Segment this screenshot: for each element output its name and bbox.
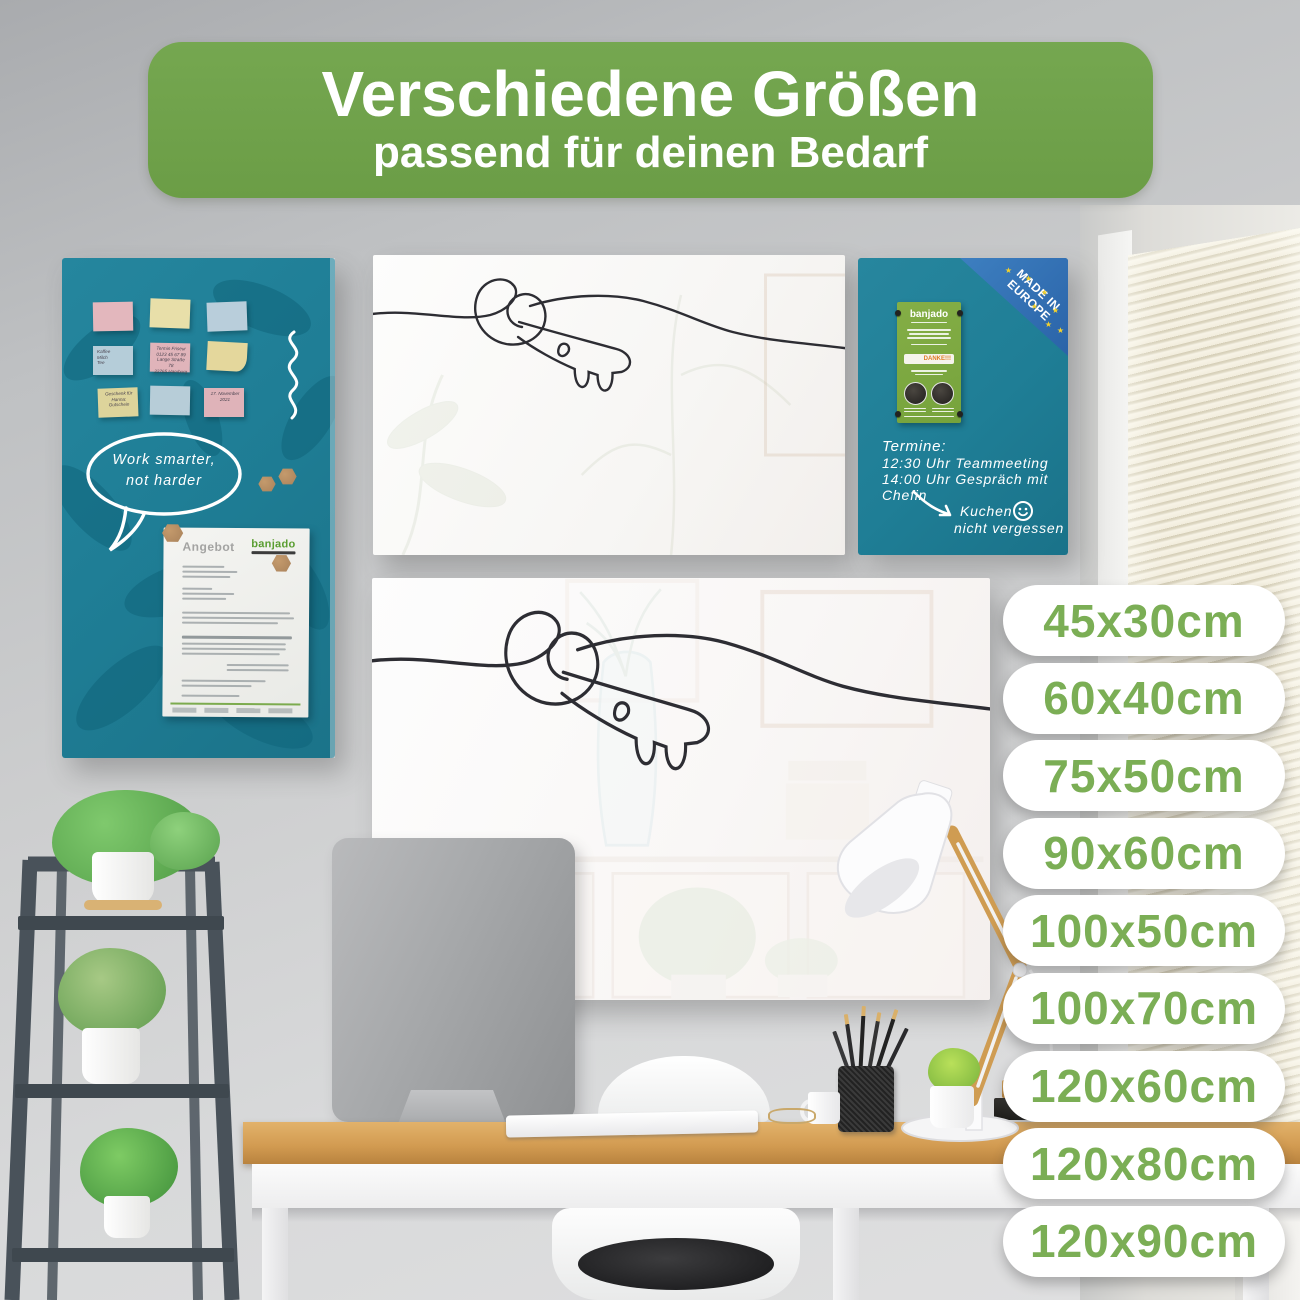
bubble-line2: not harder: [88, 471, 240, 493]
dog-photo: [931, 382, 954, 405]
size-pill: 90x60cm: [1003, 818, 1285, 889]
eu-star: ★: [1052, 306, 1059, 315]
size-pill: 120x80cm: [1003, 1128, 1285, 1199]
sticky-note: [150, 298, 191, 328]
chalk-arrow: [910, 488, 958, 522]
imac-back: [332, 838, 575, 1122]
eu-star: ★: [1025, 274, 1032, 283]
plant-pot: [82, 1028, 140, 1084]
eu-star: ★: [1057, 326, 1064, 335]
sticky-note: Geschenk für Hanna: Gutschein: [98, 387, 139, 417]
desk-leg: [833, 1208, 859, 1300]
glass-whiteboard-small: [373, 255, 845, 555]
chalk-meeting: 12:30 Uhr Teammeeting: [882, 455, 1048, 471]
sticky-note: Kaffee Milch Tee: [93, 346, 133, 375]
pinned-document: Angebot banjado: [162, 527, 309, 717]
product-scene: Kaffee Milch Tee Termin Friseur 0123 45 …: [0, 0, 1300, 1300]
size-list: 45x30cm 60x40cm 75x50cm 90x60cm 100x50cm…: [1003, 585, 1285, 1283]
chalk-squiggle: [280, 330, 306, 420]
size-pill: 45x30cm: [1003, 585, 1285, 656]
glass-memoboard-small: MADE INEUROPE ★ ★ ★ ★ ★ ★ ★ banjado DANK…: [858, 258, 1068, 555]
glass-edge-highlight: [330, 258, 335, 758]
size-pill: 120x60cm: [1003, 1051, 1285, 1122]
sticky-note: [93, 302, 134, 332]
bubble-line1: Work smarter,: [88, 450, 240, 472]
flyer-brand: banjado: [897, 309, 961, 320]
size-pill: 120x90cm: [1003, 1206, 1285, 1277]
chalk-smiley: [1012, 500, 1034, 522]
headline-title: Verschiedene Größen: [321, 61, 979, 128]
eu-star: ★: [1031, 302, 1038, 311]
sticky-note: [207, 301, 248, 331]
cork-magnet: [271, 554, 291, 572]
eu-star: ★: [1005, 266, 1012, 275]
headline-subtitle: passend für deinen Bedarf: [373, 128, 928, 179]
size-pill: 60x40cm: [1003, 663, 1285, 734]
chalk-vergessen: nicht vergessen: [954, 520, 1064, 536]
banjado-flyer: banjado DANKE!!!: [897, 302, 961, 423]
chair-cushion: [578, 1238, 774, 1290]
document-title: Angebot: [182, 540, 234, 554]
size-pill: 100x50cm: [1003, 895, 1285, 966]
chalk-termine: Termine:: [882, 438, 946, 455]
board-reflection-and-key: [373, 255, 845, 555]
dog-photo: [904, 382, 927, 405]
succulent-pot: [930, 1086, 974, 1128]
plant-pot: [92, 852, 154, 904]
magnet: [895, 411, 901, 417]
eu-star: ★: [1045, 320, 1052, 329]
chalk-kuchen: Kuchen: [960, 503, 1012, 519]
desk-leg: [262, 1208, 288, 1300]
danke-stamp: DANKE!!!: [904, 354, 954, 364]
sticky-note: 17. November 2021: [204, 388, 244, 417]
glasses: [768, 1108, 816, 1124]
headline-banner: Verschiedene Größen passend für deinen B…: [148, 42, 1153, 198]
glass-memoboard-teal: Kaffee Milch Tee Termin Friseur 0123 45 …: [62, 258, 335, 758]
size-pill: 75x50cm: [1003, 740, 1285, 811]
sticky-note: Termin Friseur 0123 45 67 89 Lange Straß…: [150, 343, 191, 373]
imac-stand: [398, 1090, 506, 1124]
eu-star: ★: [1041, 288, 1048, 297]
size-pill: 100x70cm: [1003, 973, 1285, 1044]
sticky-note: [150, 386, 191, 416]
banjado-logo: banjado: [251, 538, 295, 554]
plant-pot: [104, 1196, 150, 1238]
magnet: [957, 411, 963, 417]
sticky-note: [206, 341, 247, 372]
pot-saucer: [84, 900, 162, 910]
